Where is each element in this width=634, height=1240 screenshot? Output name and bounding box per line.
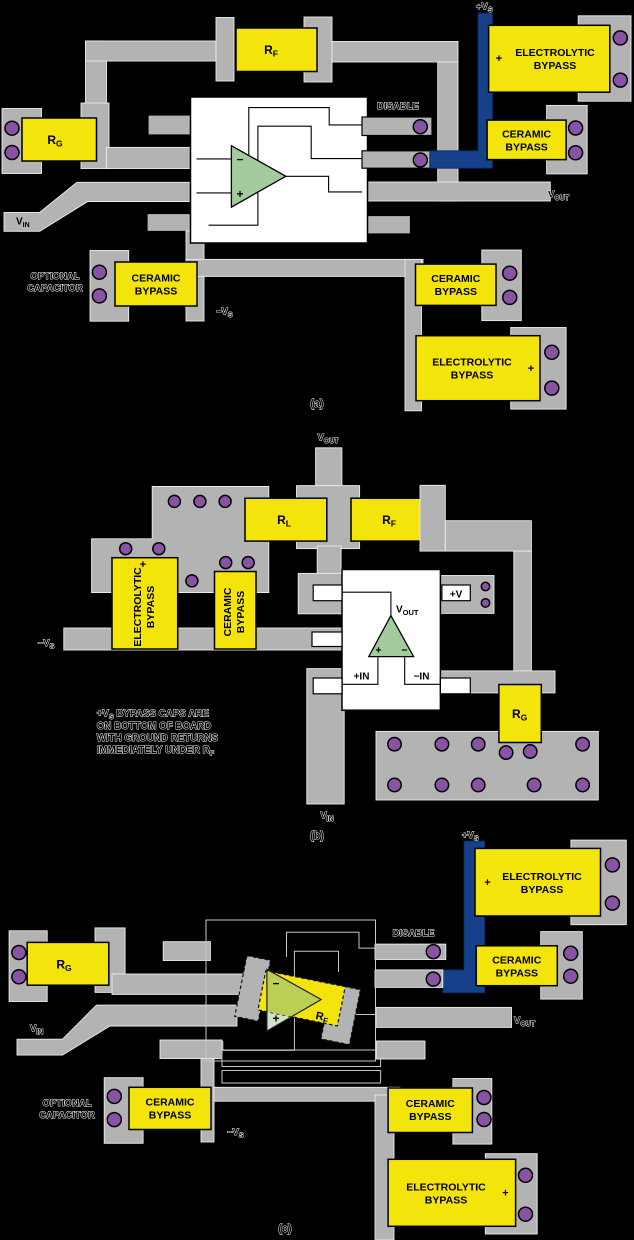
svg-text:CERAMIC: CERAMIC [132, 273, 181, 285]
svg-text:BYPASS: BYPASS [149, 1110, 191, 1122]
svg-text:−: − [236, 153, 243, 167]
svg-text:CERAMIC: CERAMIC [502, 129, 551, 141]
svg-text:BYPASS: BYPASS [235, 591, 247, 633]
svg-text:CERAMIC: CERAMIC [492, 955, 541, 967]
svg-text:CERAMIC: CERAMIC [431, 273, 480, 285]
svg-text:CAPACITOR: CAPACITOR [27, 283, 83, 294]
svg-text:WITH GROUND RETURNS: WITH GROUND RETURNS [97, 733, 219, 744]
svg-text:+: + [502, 1188, 508, 1200]
svg-text:−IN: −IN [414, 672, 430, 683]
svg-text:+: + [484, 877, 490, 889]
svg-text:−: − [272, 977, 279, 991]
svg-text:−: − [401, 645, 407, 657]
svg-text:+: + [528, 363, 534, 375]
svg-text:(a): (a) [310, 398, 324, 410]
svg-text:IMMEDIATELY UNDER RF: IMMEDIATELY UNDER RF [97, 745, 215, 758]
svg-text:CERAMIC: CERAMIC [406, 1098, 455, 1110]
svg-text:CERAMIC: CERAMIC [222, 587, 234, 636]
svg-text:(c): (c) [278, 1223, 292, 1235]
svg-text:CAPACITOR: CAPACITOR [39, 1110, 95, 1121]
svg-text:+: + [375, 645, 381, 657]
svg-text:+VS BYPASS CAPS ARE: +VS BYPASS CAPS ARE [97, 709, 210, 722]
svg-text:ON BOTTOM OF BOARD: ON BOTTOM OF BOARD [97, 721, 212, 732]
svg-text:ELECTROLYTIC: ELECTROLYTIC [432, 357, 512, 369]
svg-text:+: + [236, 187, 243, 201]
svg-text:ELECTROLYTIC: ELECTROLYTIC [132, 567, 144, 647]
svg-text:OPTIONAL: OPTIONAL [42, 1098, 91, 1109]
svg-text:ELECTROLYTIC: ELECTROLYTIC [502, 871, 582, 883]
svg-text:ELECTROLYTIC: ELECTROLYTIC [515, 47, 595, 59]
svg-text:DISABLE: DISABLE [393, 928, 435, 939]
svg-text:+: + [496, 53, 502, 65]
svg-text:ELECTROLYTIC: ELECTROLYTIC [406, 1182, 486, 1194]
svg-text:BYPASS: BYPASS [409, 1111, 451, 1123]
svg-text:BYPASS: BYPASS [534, 60, 576, 72]
svg-text:BYPASS: BYPASS [425, 1195, 467, 1207]
svg-text:+V: +V [450, 590, 463, 601]
svg-text:BYPASS: BYPASS [145, 586, 157, 628]
svg-text:+IN: +IN [354, 672, 370, 683]
svg-text:BYPASS: BYPASS [451, 370, 493, 382]
svg-text:(b): (b) [310, 830, 324, 842]
svg-text:+: + [140, 559, 146, 571]
svg-text:BYPASS: BYPASS [505, 142, 547, 154]
svg-text:CERAMIC: CERAMIC [146, 1097, 195, 1109]
svg-text:BYPASS: BYPASS [135, 286, 177, 298]
svg-text:BYPASS: BYPASS [435, 286, 477, 298]
svg-text:BYPASS: BYPASS [521, 884, 563, 896]
svg-text:BYPASS: BYPASS [496, 968, 538, 980]
svg-text:DISABLE: DISABLE [377, 101, 419, 112]
svg-text:OPTIONAL: OPTIONAL [30, 271, 79, 282]
svg-text:+: + [272, 1012, 279, 1026]
